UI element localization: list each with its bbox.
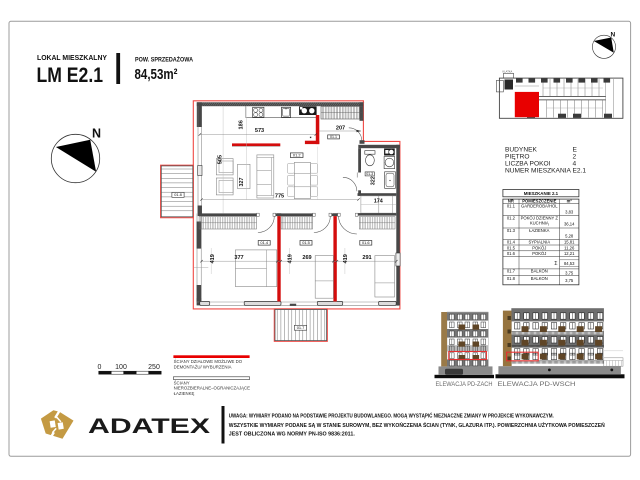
svg-text:ELEWACJA PD-ZACH: ELEWACJA PD-ZACH — [436, 381, 493, 388]
svg-text:ELEWACJA PD-WSCH: ELEWACJA PD-WSCH — [498, 381, 576, 388]
